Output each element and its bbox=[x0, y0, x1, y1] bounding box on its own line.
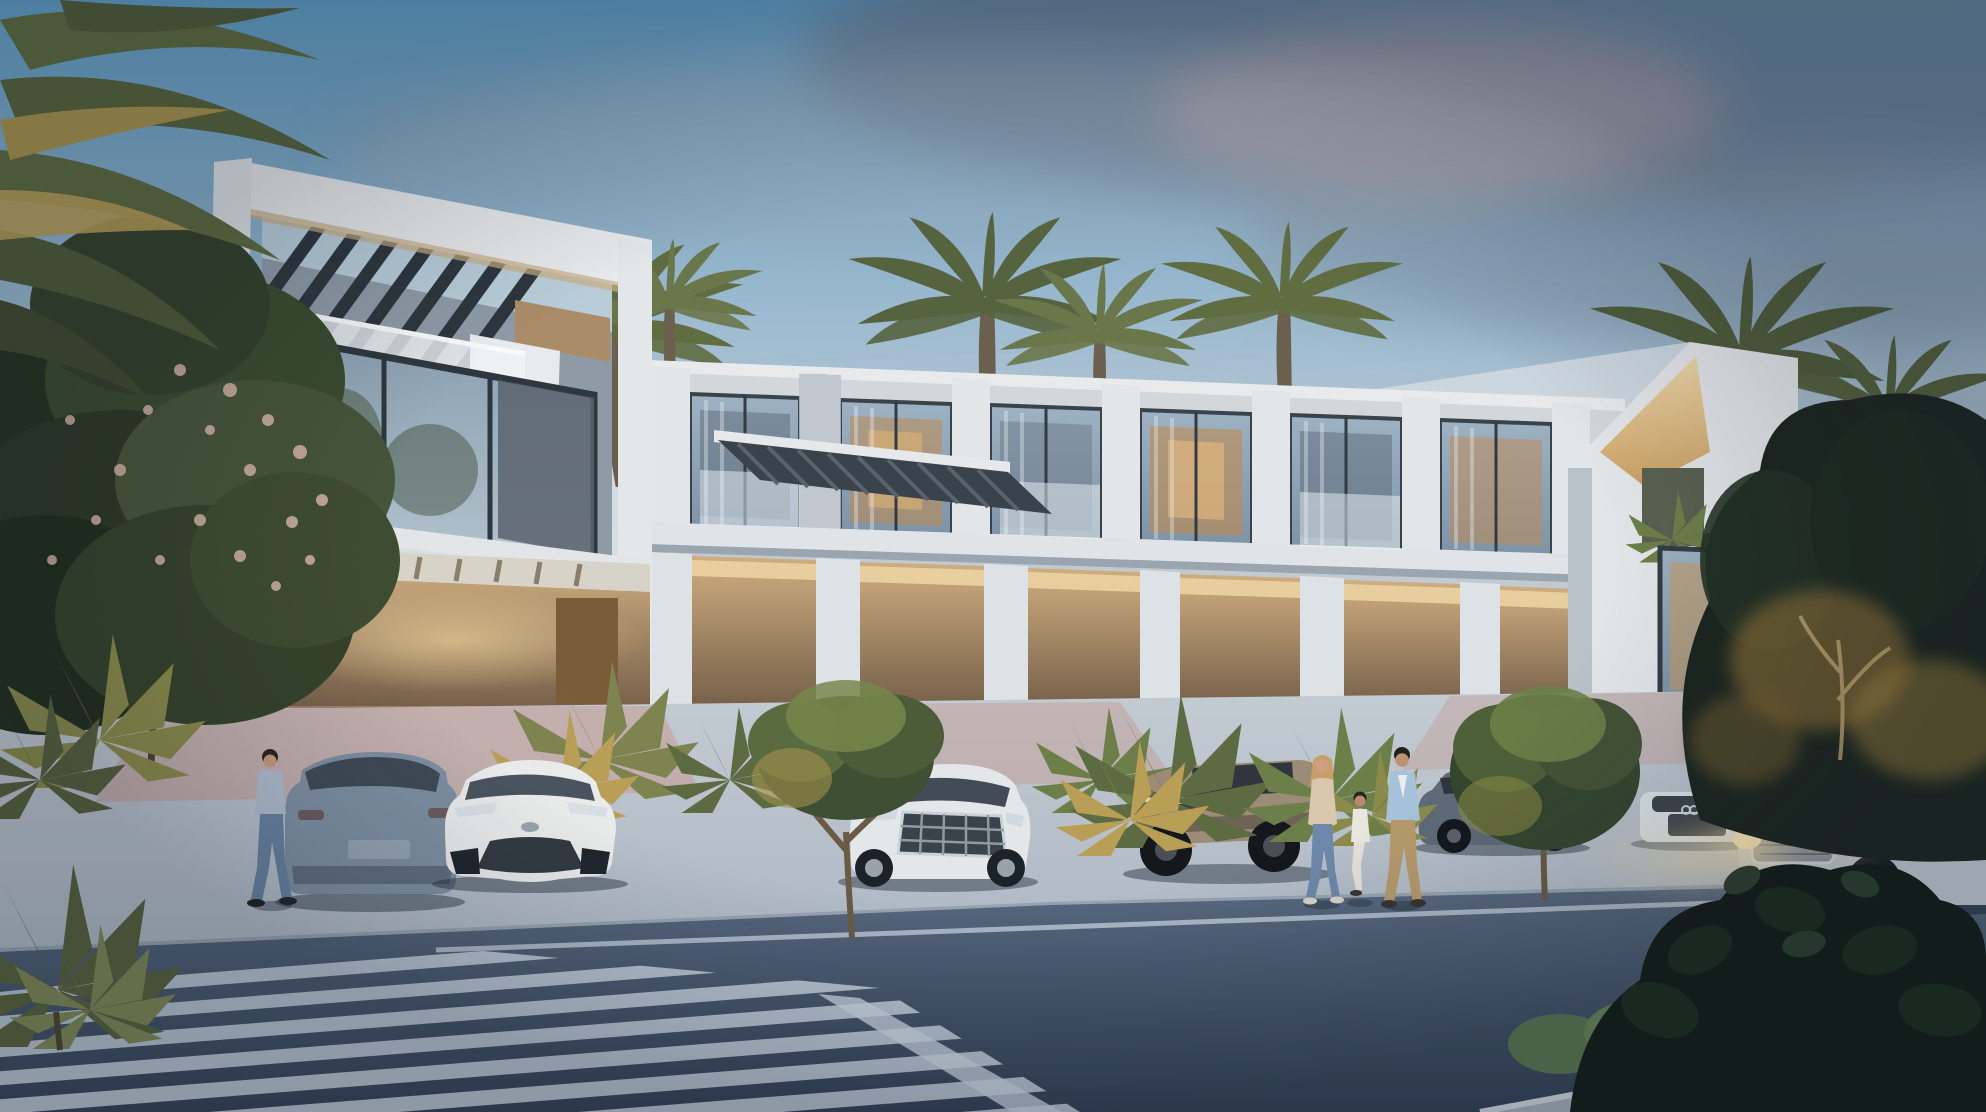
architectural-render bbox=[0, 0, 1986, 1112]
vignette bbox=[0, 0, 1986, 1112]
render-canvas bbox=[0, 0, 1986, 1112]
